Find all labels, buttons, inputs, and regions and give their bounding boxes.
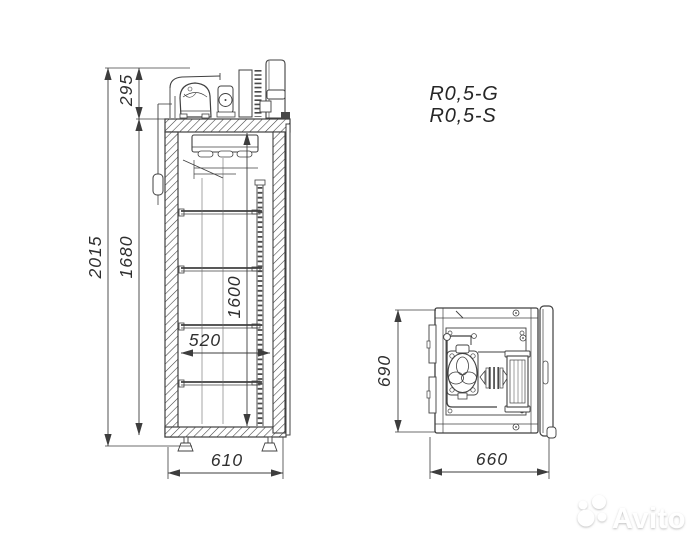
dim-label-internal-height: 1600 [224,276,244,319]
filter-drier [153,174,163,205]
dim-label-internal-width: 520 [189,330,221,350]
avito-watermark: Avito [578,495,686,535]
compressor-side [180,83,211,118]
shelves [179,209,262,387]
shelf [179,266,262,273]
condenser-plan [505,351,530,412]
avito-circles-logo [578,495,607,527]
top-panel [165,119,290,132]
adjustable-feet [178,437,277,451]
model-label-1: R0,5-G [429,83,498,105]
dim-label-overall-width: 610 [211,450,243,470]
model-label-2: R0,5-S [429,105,496,127]
top-plan-view [427,306,556,438]
shelf-rack [255,180,265,426]
door-section [273,132,285,433]
shelf [179,209,262,216]
fan-motor-side [217,86,235,117]
door-outer-skin [286,124,290,435]
technical-drawing: 2015 295 1680 1600 520 610 R0,5-G R0,5-S [0,0,687,540]
dim-label-overall-depth: 690 [374,355,394,387]
drawing-canvas: 2015 295 1680 1600 520 610 R0,5-G R0,5-S [0,0,687,540]
watermark-brand-text: Avito [612,503,686,535]
dim-label-top-width: 660 [476,449,508,469]
condenser-coil-side [239,70,258,117]
dim-label-overall-height: 2015 [85,236,105,280]
evaporator [192,135,258,157]
shelf [179,323,262,330]
dim-label-machine-height: 295 [116,74,136,107]
shelf [179,380,262,387]
rear-panel [260,60,290,119]
bottom-panel [165,427,286,437]
left-wall [165,132,178,437]
door-handle-slot [543,361,548,384]
dim-label-body-height: 1680 [116,236,136,279]
door-plan [540,306,556,438]
